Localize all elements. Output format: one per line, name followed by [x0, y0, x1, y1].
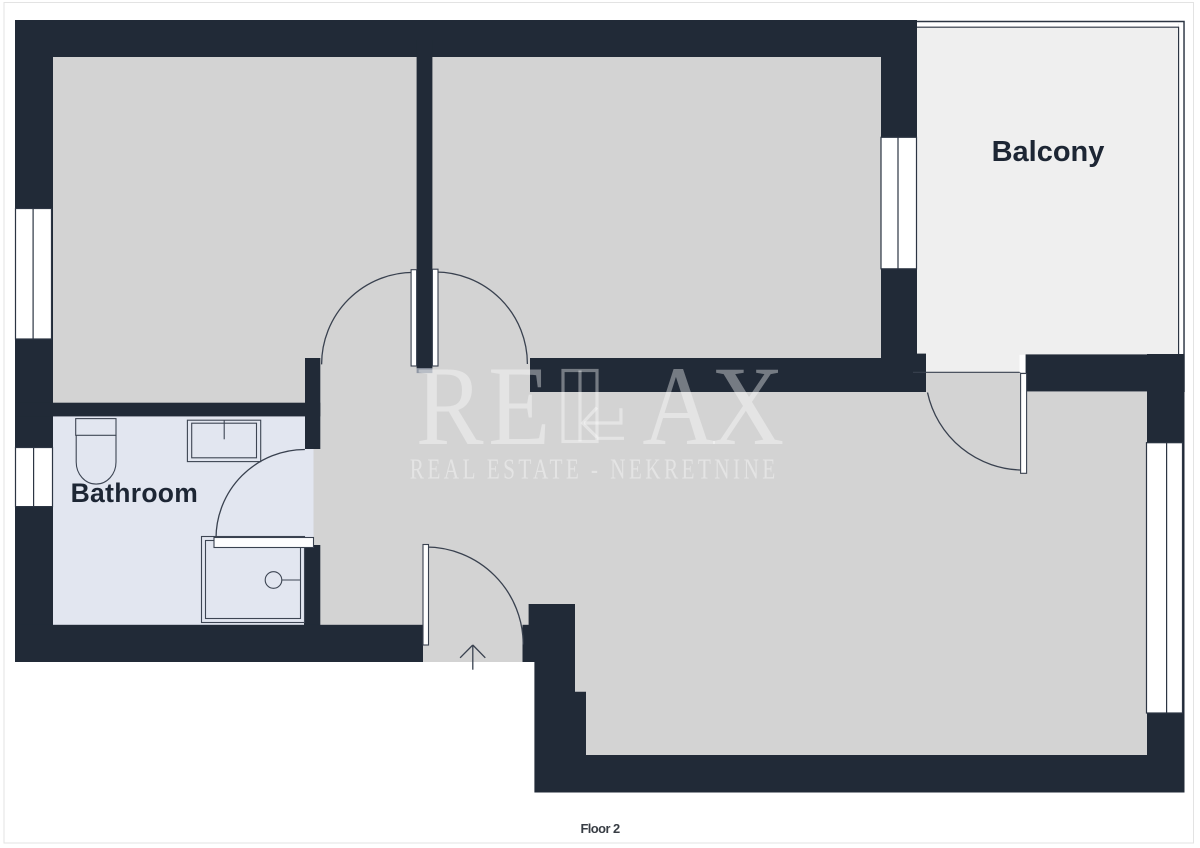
- svg-text:Balcony: Balcony: [992, 136, 1105, 168]
- svg-text:Bathroom: Bathroom: [71, 478, 199, 508]
- svg-text:REAL ESTATE - NEKRETNINE: REAL ESTATE - NEKRETNINE: [410, 455, 779, 486]
- svg-text:AX: AX: [642, 344, 782, 469]
- svg-text:RE: RE: [416, 344, 555, 469]
- svg-text:Floor 2: Floor 2: [580, 821, 620, 836]
